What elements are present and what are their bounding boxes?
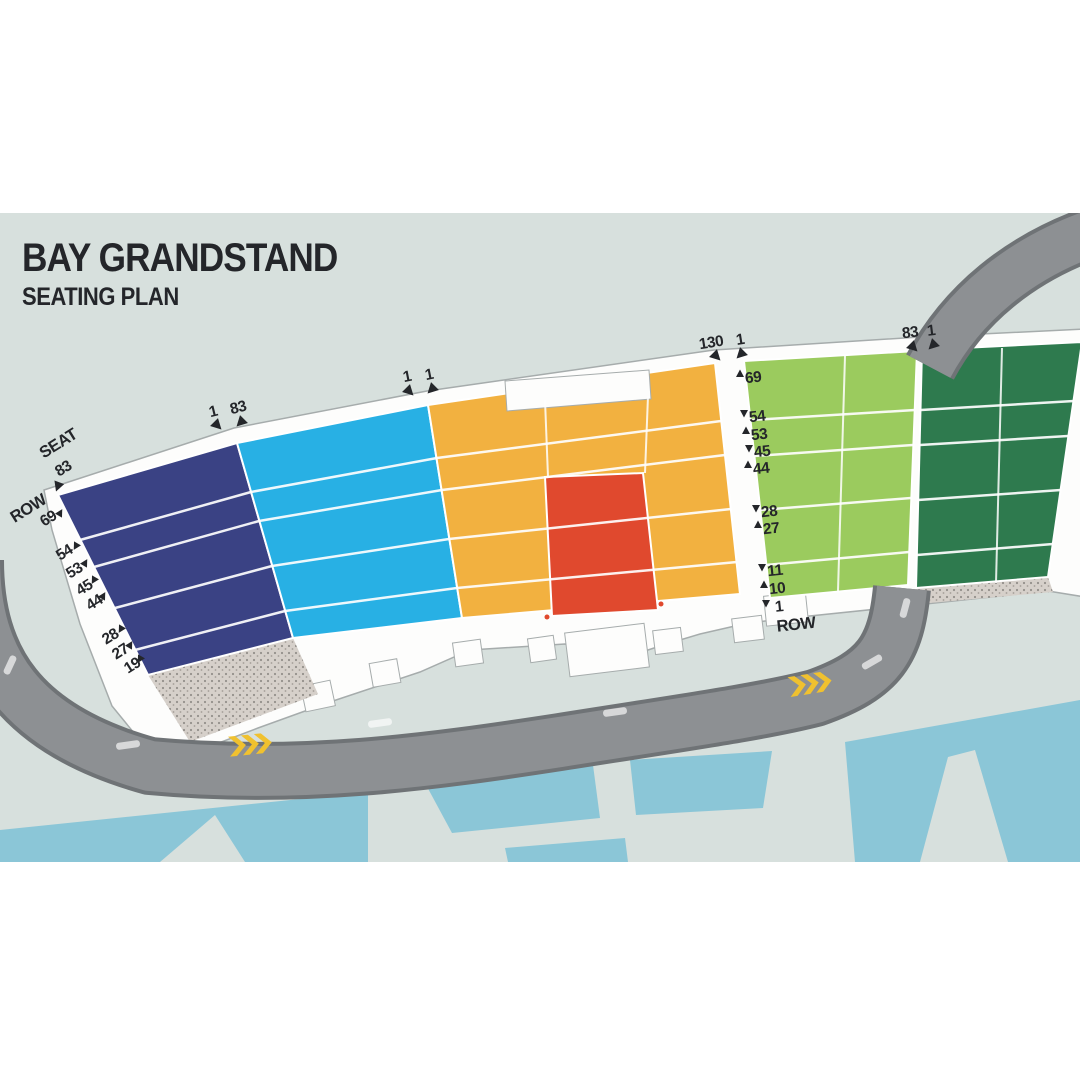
page-subtitle: SEATING PLAN (22, 283, 179, 311)
section-red (545, 473, 658, 616)
water-middle-2 (630, 751, 772, 815)
red-marker-dot-right (659, 602, 664, 607)
right-row-number: 44 (752, 460, 771, 479)
right-row-number: 10 (768, 580, 786, 599)
right-row-number: 28 (760, 503, 779, 522)
right-row-number: 27 (762, 520, 780, 539)
right-row-number: 53 (750, 426, 769, 445)
right-row-number: 11 (767, 562, 785, 581)
section-light-green (744, 351, 917, 598)
boundary-seat-number: 83 (901, 323, 920, 342)
seating-plan-page: BAY GRANDSTAND SEATING PLAN SEAT 83 ROW … (0, 0, 1080, 1080)
right-row-number: 54 (748, 408, 767, 427)
red-marker-dot-left (545, 615, 550, 620)
seating-plan-canvas: BAY GRANDSTAND SEATING PLAN SEAT 83 ROW … (0, 0, 1080, 1080)
right-row-number: 45 (753, 443, 772, 462)
right-row-number: 69 (744, 369, 763, 388)
page-title: BAY GRANDSTAND (22, 235, 337, 280)
